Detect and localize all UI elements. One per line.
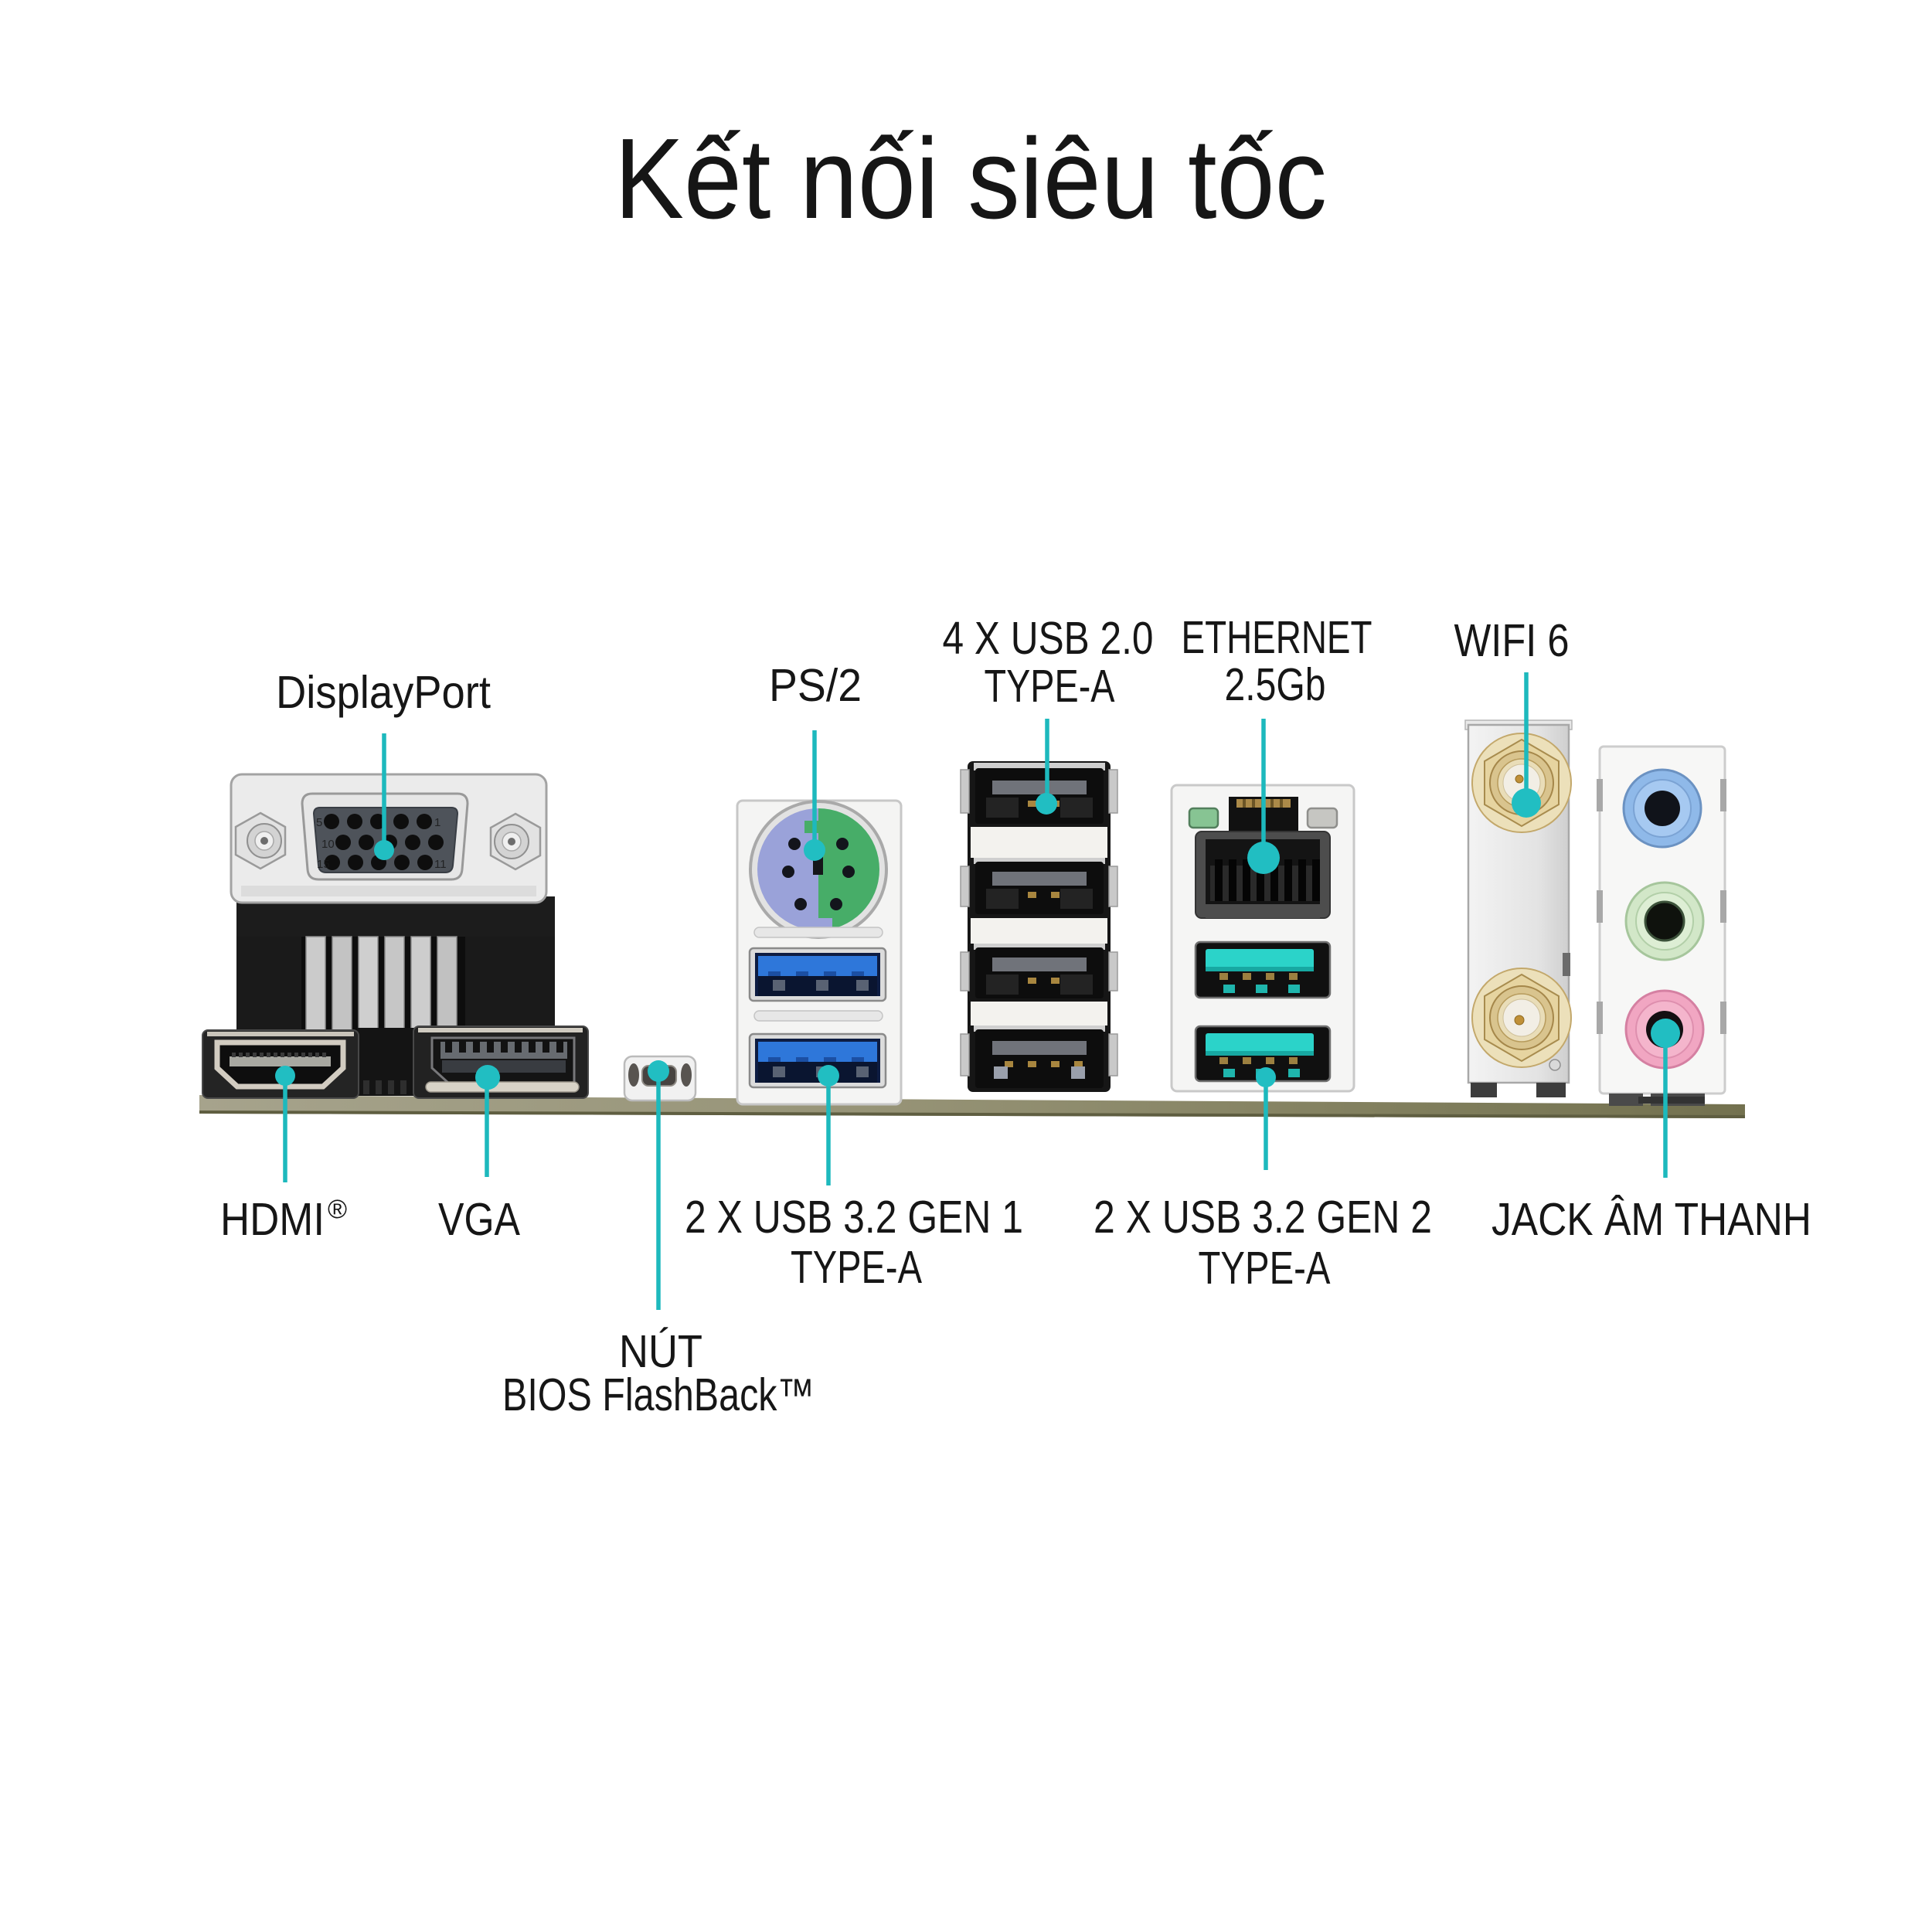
svg-text:2 X USB 3.2 GEN 2: 2 X USB 3.2 GEN 2 [1094, 1192, 1432, 1243]
svg-text:BIOS FlashBack™: BIOS FlashBack™ [502, 1369, 815, 1420]
svg-text:DisplayPort: DisplayPort [276, 667, 491, 718]
svg-text:TYPE-A: TYPE-A [985, 661, 1116, 712]
svg-text:4 X USB 2.0: 4 X USB 2.0 [943, 613, 1154, 664]
svg-text:PS/2: PS/2 [769, 660, 862, 711]
svg-text:TYPE-A: TYPE-A [791, 1242, 923, 1293]
svg-text:5: 5 [316, 816, 322, 829]
svg-text:11: 11 [434, 858, 447, 871]
svg-text:2 X USB 3.2 GEN 1: 2 X USB 3.2 GEN 1 [685, 1192, 1023, 1243]
svg-text:®: ® [328, 1195, 347, 1224]
svg-text:WIFI 6: WIFI 6 [1454, 615, 1570, 666]
svg-text:JACK ÂM THANH: JACK ÂM THANH [1492, 1194, 1811, 1245]
svg-text:10: 10 [321, 838, 335, 851]
svg-text:HDMI: HDMI [220, 1194, 325, 1245]
svg-text:15: 15 [317, 858, 330, 871]
svg-text:VGA: VGA [438, 1194, 521, 1245]
svg-text:TYPE-A: TYPE-A [1199, 1243, 1332, 1294]
svg-text:Kết nối siêu tốc: Kết nối siêu tốc [614, 115, 1327, 243]
svg-text:ETHERNET: ETHERNET [1182, 612, 1372, 663]
svg-text:2.5Gb: 2.5Gb [1225, 659, 1326, 710]
svg-text:1: 1 [434, 816, 440, 829]
